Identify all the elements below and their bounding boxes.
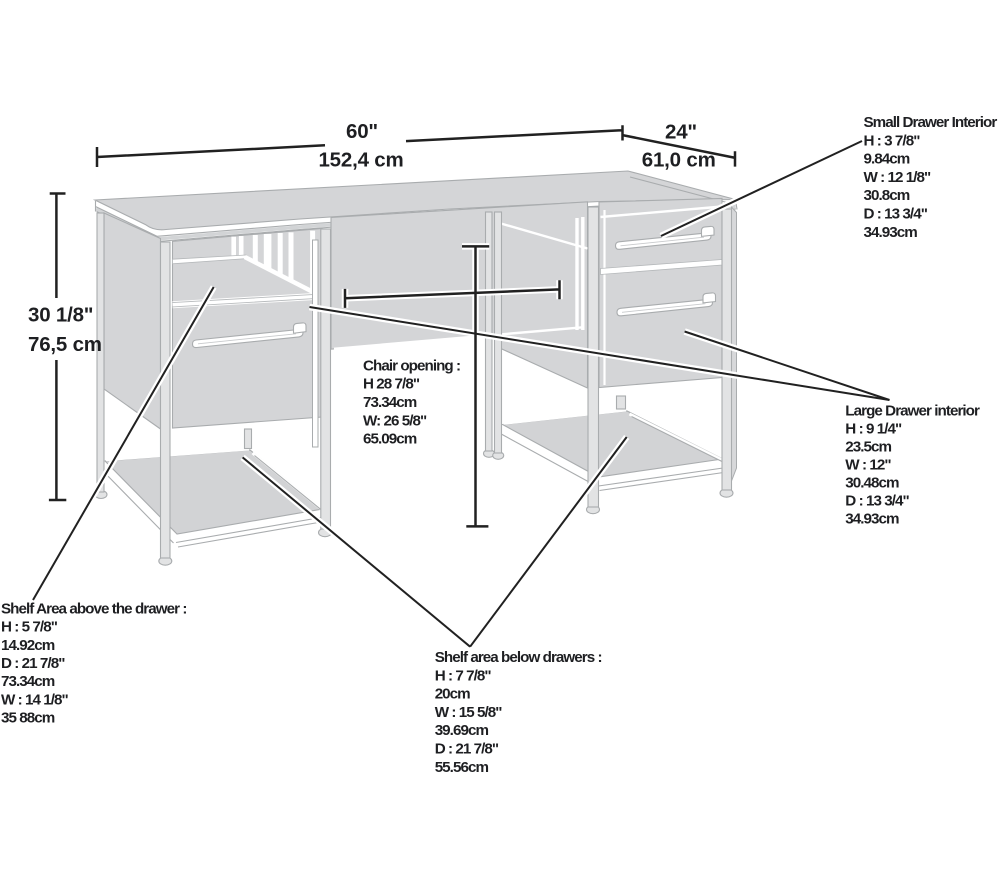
svg-text:D : 13 3/4": D : 13 3/4" xyxy=(845,493,909,510)
svg-text:H : 7 7/8": H : 7 7/8" xyxy=(435,667,492,684)
svg-text:30.8cm: 30.8cm xyxy=(864,187,910,204)
svg-text:20cm: 20cm xyxy=(435,686,470,703)
svg-text:76,5 cm: 76,5 cm xyxy=(28,333,102,356)
svg-text:30.48cm: 30.48cm xyxy=(845,475,899,492)
svg-text:Large Drawer interior: Large Drawer interior xyxy=(845,403,980,420)
svg-text:W : 14 1/8": W : 14 1/8" xyxy=(1,691,69,708)
svg-text:35 88cm: 35 88cm xyxy=(1,710,55,727)
svg-text:9.84cm: 9.84cm xyxy=(864,151,910,168)
svg-text:W : 12": W : 12" xyxy=(845,457,891,474)
svg-text:H : 3 7/8": H : 3 7/8" xyxy=(864,132,921,149)
svg-text:65.09cm: 65.09cm xyxy=(363,431,417,448)
svg-text:H : 5 7/8": H : 5 7/8" xyxy=(1,619,58,636)
svg-text:D : 13 3/4": D : 13 3/4" xyxy=(864,206,928,223)
svg-text:D : 21 7/8": D : 21 7/8" xyxy=(1,655,65,672)
svg-text:H 28 7/8": H 28 7/8" xyxy=(363,376,420,393)
svg-text:60": 60" xyxy=(346,120,378,143)
svg-text:Small Drawer Interior: Small Drawer Interior xyxy=(864,114,998,131)
svg-text:W : 12 1/8": W : 12 1/8" xyxy=(864,169,932,186)
svg-text:Chair opening :: Chair opening : xyxy=(363,357,460,374)
svg-text:23.5cm: 23.5cm xyxy=(845,439,891,456)
svg-text:14.92cm: 14.92cm xyxy=(1,637,55,654)
svg-text:H : 9 1/4": H : 9 1/4" xyxy=(845,421,902,438)
svg-text:152,4 cm: 152,4 cm xyxy=(318,149,403,172)
svg-text:39.69cm: 39.69cm xyxy=(435,722,489,739)
svg-text:24": 24" xyxy=(665,121,697,144)
svg-text:D : 21 7/8": D : 21 7/8" xyxy=(435,741,499,758)
svg-text:Shelf area below drawers :: Shelf area below drawers : xyxy=(435,649,602,666)
svg-text:73.34cm: 73.34cm xyxy=(1,673,55,690)
svg-text:73.34cm: 73.34cm xyxy=(363,394,417,411)
svg-text:W : 15 5/8": W : 15 5/8" xyxy=(435,704,503,721)
svg-text:30 1/8": 30 1/8" xyxy=(28,304,93,327)
svg-text:55.56cm: 55.56cm xyxy=(435,759,489,776)
svg-text:Shelf Area above the drawer :: Shelf Area above the drawer : xyxy=(1,600,186,617)
svg-text:34.93cm: 34.93cm xyxy=(864,224,918,241)
svg-text:61,0 cm: 61,0 cm xyxy=(642,149,716,172)
svg-text:34.93cm: 34.93cm xyxy=(845,511,899,528)
svg-text:W: 26 5/8": W: 26 5/8" xyxy=(363,412,427,429)
